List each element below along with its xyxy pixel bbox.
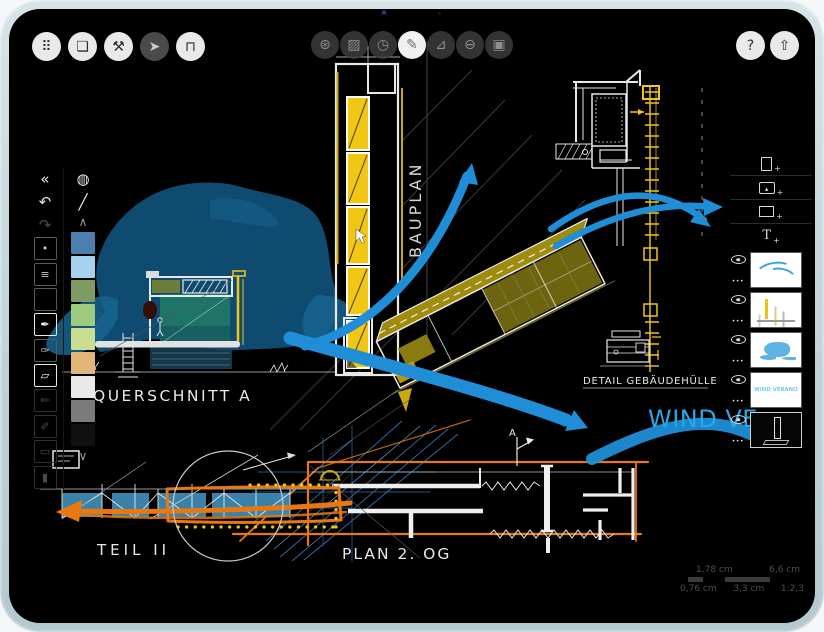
mic-dot <box>438 12 441 15</box>
small-scale-value: 0,76 cm <box>680 584 717 594</box>
section-marker-label: A <box>509 428 516 439</box>
mask-button[interactable]: ▣ <box>485 31 513 59</box>
ratio-value: 1:2,3 <box>781 584 804 594</box>
querschnitt-label: QUERSCHNITT A <box>93 387 252 405</box>
layer-active-sketch-thumbnail[interactable] <box>750 412 802 448</box>
layer-menu-button[interactable]: ••• <box>732 278 744 285</box>
pages-button[interactable]: ❏ <box>68 32 97 61</box>
mid-scale-value: 3,3 cm <box>733 584 764 594</box>
visibility-toggle-eye-icon[interactable] <box>731 335 746 344</box>
brush-wheel-button[interactable]: ⊛ <box>311 31 339 59</box>
layer-drawings-thumbnail[interactable] <box>750 292 802 328</box>
page-background: BAUPLAN <box>0 0 824 632</box>
plus-badge: + <box>773 236 780 247</box>
width-value: 1,78 cm <box>696 565 733 575</box>
scroll-down-icon[interactable]: ∨ <box>79 447 88 465</box>
measurement-readout: 1,78 cm 6,6 cm 0,76 cm 3,3 cm 1:2,3 <box>678 565 806 594</box>
insert-image-icon: ▴ <box>759 182 775 194</box>
length-value: 6,6 cm <box>769 565 800 575</box>
layer-row: ••• <box>730 332 812 368</box>
layer-actions: + ▴ + + T + <box>730 152 812 247</box>
layer-blob-thumbnail[interactable] <box>750 332 802 368</box>
layer-controls: ••• <box>730 252 746 288</box>
transform-button[interactable]: + <box>730 200 812 224</box>
toolbar-left: ⠿❏⚒➤⊓ <box>32 32 205 61</box>
canvas-move-button[interactable]: ⠿ <box>32 32 61 61</box>
fill-button[interactable]: ▨ <box>340 31 368 59</box>
insert-image-button[interactable]: ▴ + <box>730 176 812 200</box>
plan-drawing: A <box>233 420 648 562</box>
layer-row: •••WIND VERANO <box>730 372 812 408</box>
tool-slabs[interactable]: ≡ <box>34 263 57 286</box>
app-stage: BAUPLAN <box>9 9 815 623</box>
ipad-frame: BAUPLAN <box>0 0 824 632</box>
tools-column: « ↶ ↷ •≡✒✑▱✏✐▭▮ <box>30 167 64 490</box>
set-square-button[interactable]: ⊿ <box>427 31 455 59</box>
tool-roller[interactable]: ▭ <box>34 440 57 463</box>
layer-menu-button[interactable]: ••• <box>732 438 744 445</box>
visibility-toggle-eye-icon[interactable] <box>731 255 746 264</box>
color-wheel-icon[interactable]: ◍ <box>76 167 89 190</box>
redo-button[interactable]: ↷ <box>39 213 52 236</box>
swatch-list <box>71 231 95 447</box>
small-scale-bar <box>688 577 703 582</box>
tool-palette: « ↶ ↷ •≡✒✑▱✏✐▭▮ ◍ ╱ ∧ ∨ <box>30 167 98 490</box>
add-page-button[interactable]: + <box>730 152 812 176</box>
color-swatch-4[interactable] <box>71 304 95 326</box>
scroll-up-icon[interactable]: ∧ <box>79 213 88 231</box>
tool-marker[interactable]: ▮ <box>34 466 57 489</box>
colors-column: ◍ ╱ ∧ ∨ <box>68 167 98 490</box>
layer-controls: ••• <box>730 292 746 328</box>
teil-label: TEIL II <box>96 541 170 559</box>
collapse-panel-button[interactable]: « <box>40 167 49 190</box>
plan-label: PLAN 2. OG <box>342 545 451 563</box>
visibility-toggle-eye-icon[interactable] <box>731 415 746 424</box>
layers-panel: + ▴ + + T + ••••••••••••WIND VERANO••• <box>730 152 812 452</box>
layer-arrows-thumbnail[interactable] <box>750 252 802 288</box>
eraser-ring-button[interactable]: ⊖ <box>456 31 484 59</box>
transform-icon <box>759 206 774 217</box>
toolbar-right: ?⇧ <box>736 31 799 60</box>
tool-brush[interactable]: ✐ <box>34 415 57 438</box>
selection-button[interactable]: ➤ <box>140 32 169 61</box>
layer-wind-text-thumbnail[interactable]: WIND VERANO <box>750 372 802 408</box>
eyedropper-icon[interactable]: ╱ <box>78 190 87 213</box>
add-text-button[interactable]: T + <box>730 224 812 247</box>
tool-frame[interactable] <box>34 288 57 311</box>
sketch-canvas[interactable]: BAUPLAN <box>9 9 815 623</box>
plus-badge: + <box>777 188 784 199</box>
tool-dot[interactable]: • <box>34 237 57 260</box>
layer-menu-button[interactable]: ••• <box>732 358 744 365</box>
section-marker: A <box>509 428 534 466</box>
help-button[interactable]: ? <box>736 31 765 60</box>
color-swatch-1[interactable] <box>71 232 95 254</box>
layer-list: ••••••••••••WIND VERANO••• <box>730 252 812 448</box>
layer-row: ••• <box>730 252 812 288</box>
mountain-glyph: ▴ <box>765 186 769 193</box>
layer-row: ••• <box>730 412 812 448</box>
tool-eraser[interactable]: ▱ <box>34 364 57 387</box>
pen-button[interactable]: ✎ <box>398 31 426 59</box>
layer-menu-button[interactable]: ••• <box>732 398 744 405</box>
add-text-icon: T <box>762 229 771 242</box>
layer-menu-button[interactable]: ••• <box>732 318 744 325</box>
color-swatch-8[interactable] <box>71 400 95 422</box>
bauplan-label: BAUPLAN <box>406 162 425 258</box>
screen: BAUPLAN <box>9 9 815 623</box>
settings-button[interactable]: ⚒ <box>104 32 133 61</box>
layer-row: ••• <box>730 292 812 328</box>
layer-text-preview: WIND VERANO <box>754 387 798 393</box>
color-swatch-7[interactable] <box>71 376 95 398</box>
color-swatch-2[interactable] <box>71 256 95 278</box>
scale-bars <box>678 576 806 583</box>
color-swatch-3[interactable] <box>71 280 95 302</box>
color-swatch-9[interactable] <box>71 424 95 446</box>
layer-controls: ••• <box>730 332 746 368</box>
visibility-toggle-eye-icon[interactable] <box>731 295 746 304</box>
large-scale-bar <box>725 577 770 582</box>
color-swatch-5[interactable] <box>71 328 95 350</box>
tool-list: •≡✒✑▱✏✐▭▮ <box>34 236 57 490</box>
toolbar-center: ⊛▨◷✎⊿⊖▣ <box>311 31 513 59</box>
layer-controls: ••• <box>730 372 746 408</box>
undo-button[interactable]: ↶ <box>39 190 52 213</box>
front-camera-icon <box>380 9 388 17</box>
plus-badge: + <box>774 164 781 175</box>
add-page-icon <box>761 157 772 171</box>
tool-fountain-pen[interactable]: ✒ <box>34 313 57 336</box>
visibility-toggle-eye-icon[interactable] <box>731 375 746 384</box>
measure-button[interactable]: ⊓ <box>176 32 205 61</box>
share-button[interactable]: ⇧ <box>770 31 799 60</box>
layer-controls: ••• <box>730 412 746 448</box>
color-swatch-6[interactable] <box>71 352 95 374</box>
detail-label: DETAIL GEBÄUDEHÜLLE <box>583 374 718 387</box>
compass-button[interactable]: ◷ <box>369 31 397 59</box>
tool-airbrush[interactable]: ✑ <box>34 339 57 362</box>
plus-badge: + <box>776 212 783 223</box>
tool-pencil[interactable]: ✏ <box>34 389 57 412</box>
